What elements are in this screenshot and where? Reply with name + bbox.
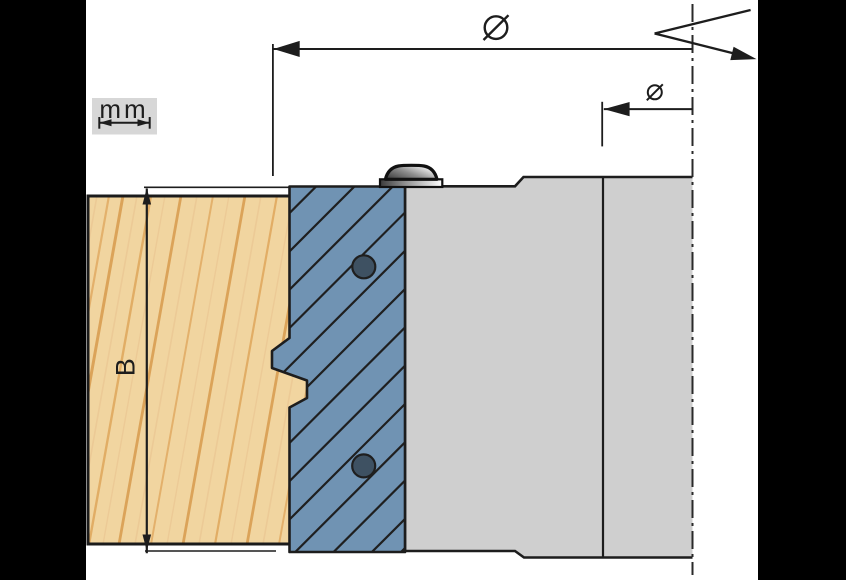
svg-text:mm: mm [99, 94, 148, 124]
svg-text:B: B [110, 358, 140, 376]
